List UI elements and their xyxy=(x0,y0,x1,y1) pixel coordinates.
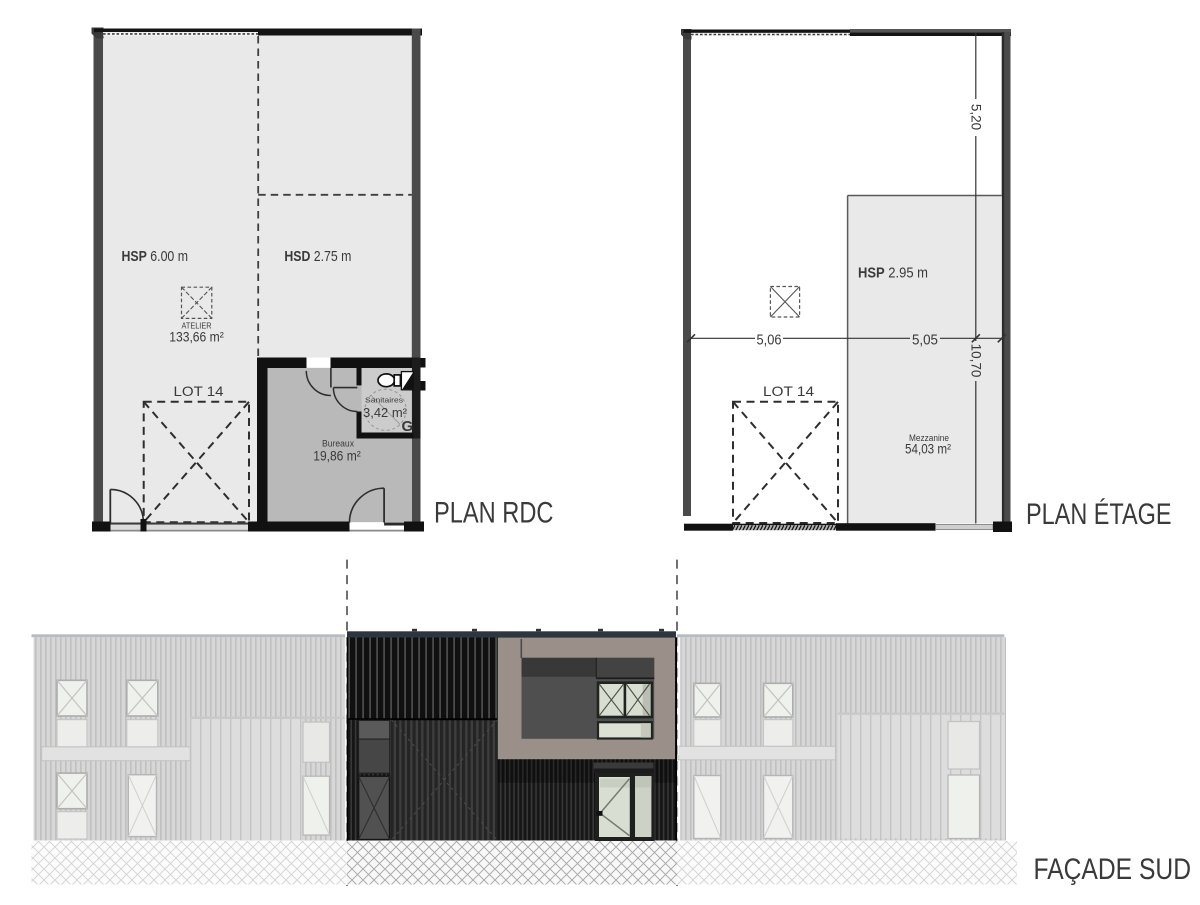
svg-text:PLAN ÉTAGE: PLAN ÉTAGE xyxy=(1026,498,1172,531)
svg-text:5,06: 5,06 xyxy=(757,333,782,349)
svg-text:PLAN RDC: PLAN RDC xyxy=(434,497,554,530)
svg-text:LOT 14: LOT 14 xyxy=(763,383,814,399)
svg-text:5,20: 5,20 xyxy=(968,104,983,130)
svg-text:G: G xyxy=(402,418,414,435)
svg-text:10,70: 10,70 xyxy=(968,344,983,378)
svg-text:HSP 2.95 m: HSP 2.95 m xyxy=(858,265,928,282)
svg-text:HSD 2.75 m: HSD 2.75 m xyxy=(284,248,351,265)
svg-text:133,66 m²: 133,66 m² xyxy=(169,330,224,345)
svg-text:FAÇADE SUD: FAÇADE SUD xyxy=(1034,853,1192,886)
svg-text:19,86 m²: 19,86 m² xyxy=(313,449,361,464)
svg-text:LOT 14: LOT 14 xyxy=(174,383,224,399)
svg-text:54,03 m²: 54,03 m² xyxy=(905,442,951,457)
svg-text:3,42 m²: 3,42 m² xyxy=(363,406,407,420)
svg-text:5,05: 5,05 xyxy=(912,333,938,349)
svg-text:Bureaux: Bureaux xyxy=(322,439,354,449)
svg-text:HSP 6.00 m: HSP 6.00 m xyxy=(122,248,189,265)
svg-text:Sanitaires: Sanitaires xyxy=(365,396,403,405)
